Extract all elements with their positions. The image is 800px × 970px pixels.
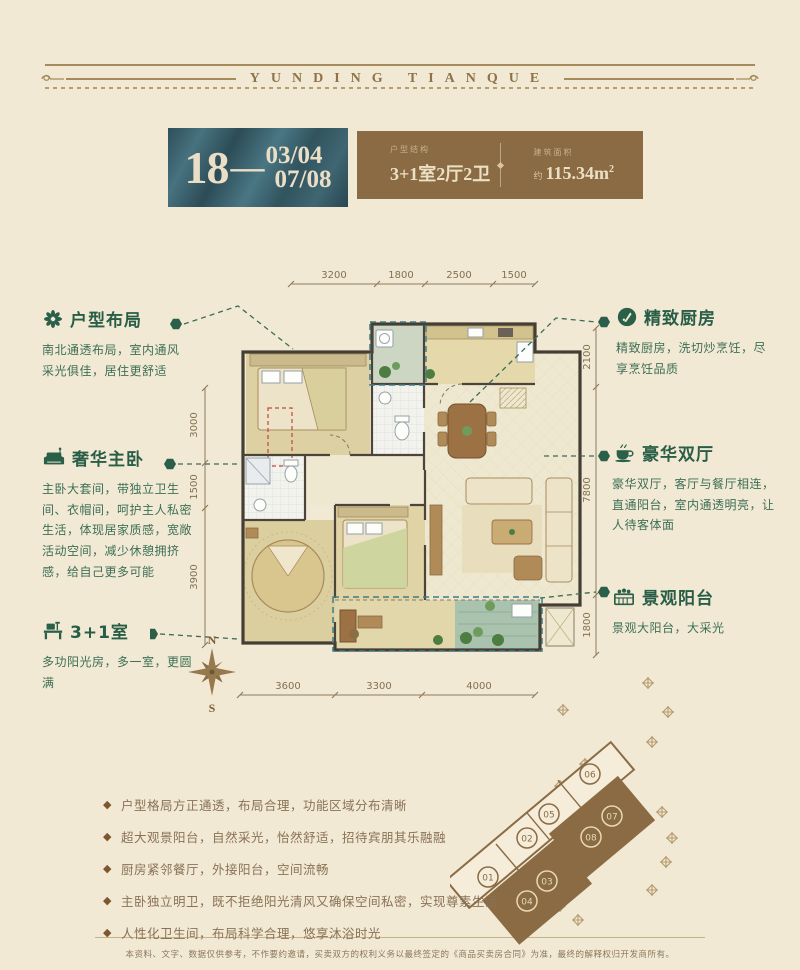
sofa-icon [42,447,66,469]
diamond-bullet-icon: ◆ [103,894,112,907]
compass: N S [188,633,236,715]
sunroom-balcony-highlight [333,597,542,651]
dim-top-3: 2500 [446,270,471,281]
layout-spec-value: 3+1室2厅2卫 [390,160,500,186]
diamond-bullet-icon: ◆ [103,830,112,843]
dim-bottom-3: 4000 [466,681,491,692]
brand-title: YUNDING TIANQUE [236,71,564,87]
annotation-body: 主卧大套间，带独立卫生间、衣帽间，呵护主人私密生活，体现居家质感，宽敞活动空间，… [42,479,196,582]
header-rule [45,64,755,66]
dim-left-1: 3000 [189,412,200,437]
dash: — [231,149,265,187]
annotation-body: 精致厨房，洗切炒烹饪，尽享烹饪品质 [616,338,774,379]
header-dashed-rule [45,87,755,89]
annotation-title: 精致厨房 [644,304,716,329]
annotation-balcony: 景观阳台 景观大阳台，大采光 [612,584,772,639]
unit-number-banner: 18 — 03/04 07/08 [168,128,348,207]
feature-item: ◆超大观景阳台，自然采光，怡然舒适，招待宾朋其乐融融 [103,827,593,846]
feature-item: ◆主卧独立明卫，既不拒绝阳光清风又确保空间私密，实现尊素生活 [103,891,593,910]
annotation-sunroom: 3+1室 多功阳光房，多一室，更圆满 [42,618,192,693]
unit-marker-07: 07 [602,806,622,826]
diamond-bullet-icon: ◆ [103,862,112,875]
annotation-layout: 户型布局 南北通透布局，室内通风采光俱佳，居住更舒适 [42,306,182,381]
unit-spec-banner: 户型结构 3+1室2厅2卫 建筑面积 约115.34m2 [357,131,643,199]
laundry-highlight [370,322,426,385]
annotation-title: 奢华主卧 [72,445,144,470]
area-spec-label: 建筑面积 [534,147,644,158]
feature-text: 人性化卫生间，布局科学合理，悠享沐浴时光 [121,923,381,942]
cup-icon [612,442,636,464]
feature-item: ◆人性化卫生间，布局科学合理，悠享沐浴时光 [103,923,593,942]
flourish-left-icon [40,72,66,86]
spec-divider [500,143,501,187]
floor-plan: 3200 1800 2500 1500 3600 3300 4000 3000 … [150,255,650,735]
feature-list: ◆户型格局方正通透，布局合理，功能区域分布清晰 ◆超大观景阳台，自然采光，怡然舒… [103,795,593,955]
unit-numbers: 03/04 07/08 [266,144,332,192]
dim-bottom-1: 3600 [275,681,300,692]
area-sup: 2 [609,164,614,175]
kitchen-icon [616,306,638,328]
feature-text: 主卧独立明卫，既不拒绝阳光清风又确保空间私密，实现尊素生活 [121,891,498,910]
annotation-balcony-head: 景观阳台 [612,584,772,609]
dim-top-4: 1500 [501,270,526,281]
annotation-master: 奢华主卧 主卧大套间，带独立卫生间、衣帽间，呵护主人私密生活，体现居家质感，宽敞… [42,445,196,582]
annotation-kitchen: 精致厨房 精致厨房，洗切炒烹饪，尽享烹饪品质 [616,304,774,379]
annotation-title: 3+1室 [70,618,129,643]
svg-text:07: 07 [606,813,617,823]
dimensions: 3200 1800 2500 1500 3600 3300 4000 3000 … [189,270,599,698]
building-number: 18 [185,145,229,191]
balcony-icon [612,586,636,608]
room-floors [243,324,580,650]
area-spec: 建筑面积 约115.34m2 [501,147,644,184]
header-divider-left [66,78,236,80]
feature-item: ◆厨房紧邻餐厅，外接阳台，空间流畅 [103,859,593,878]
flower-icon [42,308,64,330]
annotation-sunroom-head: 3+1室 [42,618,192,643]
annotation-connectors [150,306,610,639]
annotation-body: 多功阳光房，多一室，更圆满 [42,652,192,693]
annotation-title: 景观阳台 [642,584,714,609]
dim-bottom-2: 3300 [366,681,391,692]
area-spec-value: 约115.34m2 [534,163,644,184]
header: YUNDING TIANQUE [0,70,800,88]
layout-spec: 户型结构 3+1室2厅2卫 [357,144,500,186]
annotation-layout-head: 户型布局 [42,306,182,331]
furniture [244,326,574,646]
layout-spec-label: 户型结构 [390,144,500,155]
annotation-title: 户型布局 [70,306,142,331]
brochure-page: YUNDING TIANQUE 18 — 03/04 07/08 户型结构 3+… [0,0,800,970]
diamond-bullet-icon: ◆ [103,926,112,939]
compass-south: S [209,701,216,715]
annotation-body: 南北通透布局，室内通风采光俱佳，居住更舒适 [42,340,182,381]
units-line1: 03/04 [266,144,332,168]
unit-marker-06: 06 [580,764,600,784]
feature-text: 超大观景阳台，自然采光，怡然舒适，招待宾朋其乐融融 [121,827,446,846]
annotation-halls: 豪华双厅 豪华双厅，客厅与餐厅相连，直通阳台，室内通透明亮，让人待客体面 [612,440,776,536]
annotation-body: 景观大阳台，大采光 [612,618,772,639]
diamond-bullet-icon: ◆ [103,798,112,811]
annotation-title: 豪华双厅 [642,440,714,465]
units-line2: 07/08 [275,168,332,192]
svg-text:06: 06 [584,771,596,781]
area-number: 115.34m [546,163,610,183]
feature-item: ◆户型格局方正通透，布局合理，功能区域分布清晰 [103,795,593,814]
dim-top-1: 3200 [321,270,346,281]
dim-top-2: 1800 [388,270,413,281]
header-divider-right [564,78,734,80]
annotation-master-head: 奢华主卧 [42,445,196,470]
compass-north: N [208,633,217,647]
walls [243,324,580,650]
area-approx: 约 [534,171,543,181]
desk-icon [42,620,64,642]
flourish-right-icon [734,72,760,86]
feature-text: 户型格局方正通透，布局合理，功能区域分布清晰 [121,795,407,814]
feature-text: 厨房紧邻餐厅，外接阳台，空间流畅 [121,859,329,878]
dim-right-2: 7800 [582,477,593,502]
dim-right-1: 2100 [582,344,593,369]
annotation-body: 豪华双厅，客厅与餐厅相连，直通阳台，室内通透明亮，让人待客体面 [612,474,776,536]
dim-right-3: 1800 [582,612,593,637]
annotation-kitchen-head: 精致厨房 [616,304,774,329]
annotation-halls-head: 豪华双厅 [612,440,776,465]
